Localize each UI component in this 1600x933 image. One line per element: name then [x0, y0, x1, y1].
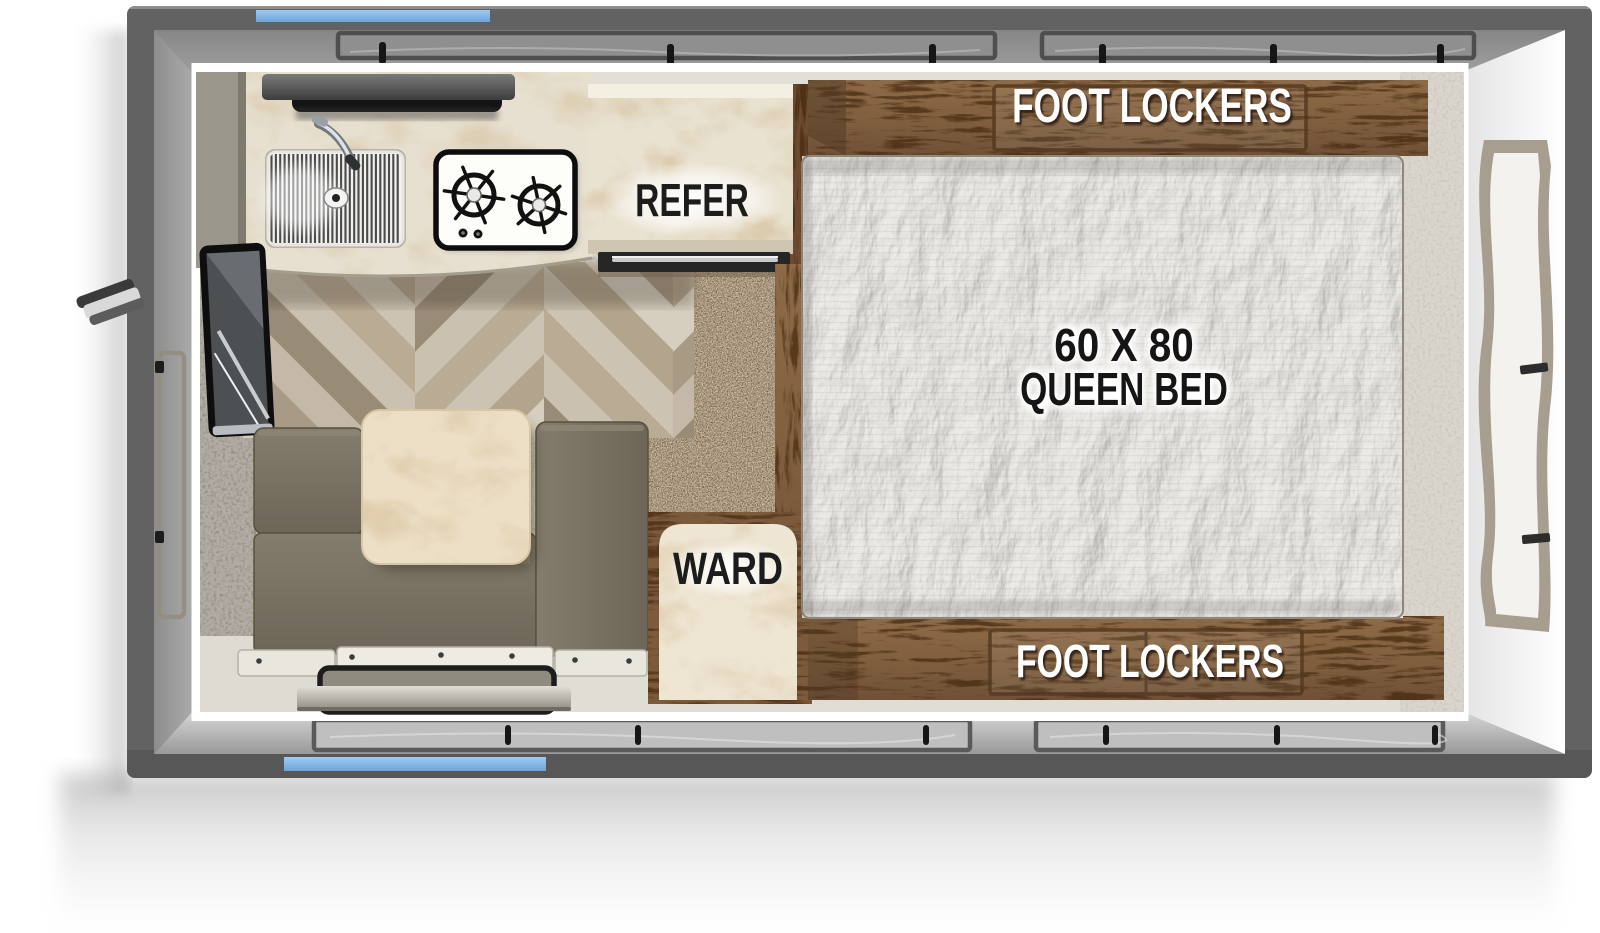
svg-text:QUEEN BED: QUEEN BED	[1020, 363, 1228, 415]
svg-text:WARD: WARD	[673, 543, 783, 594]
svg-text:FOOT LOCKERS: FOOT LOCKERS	[1012, 79, 1292, 133]
svg-text:FOOT LOCKERS: FOOT LOCKERS	[1016, 635, 1284, 687]
svg-text:REFER: REFER	[635, 175, 749, 226]
